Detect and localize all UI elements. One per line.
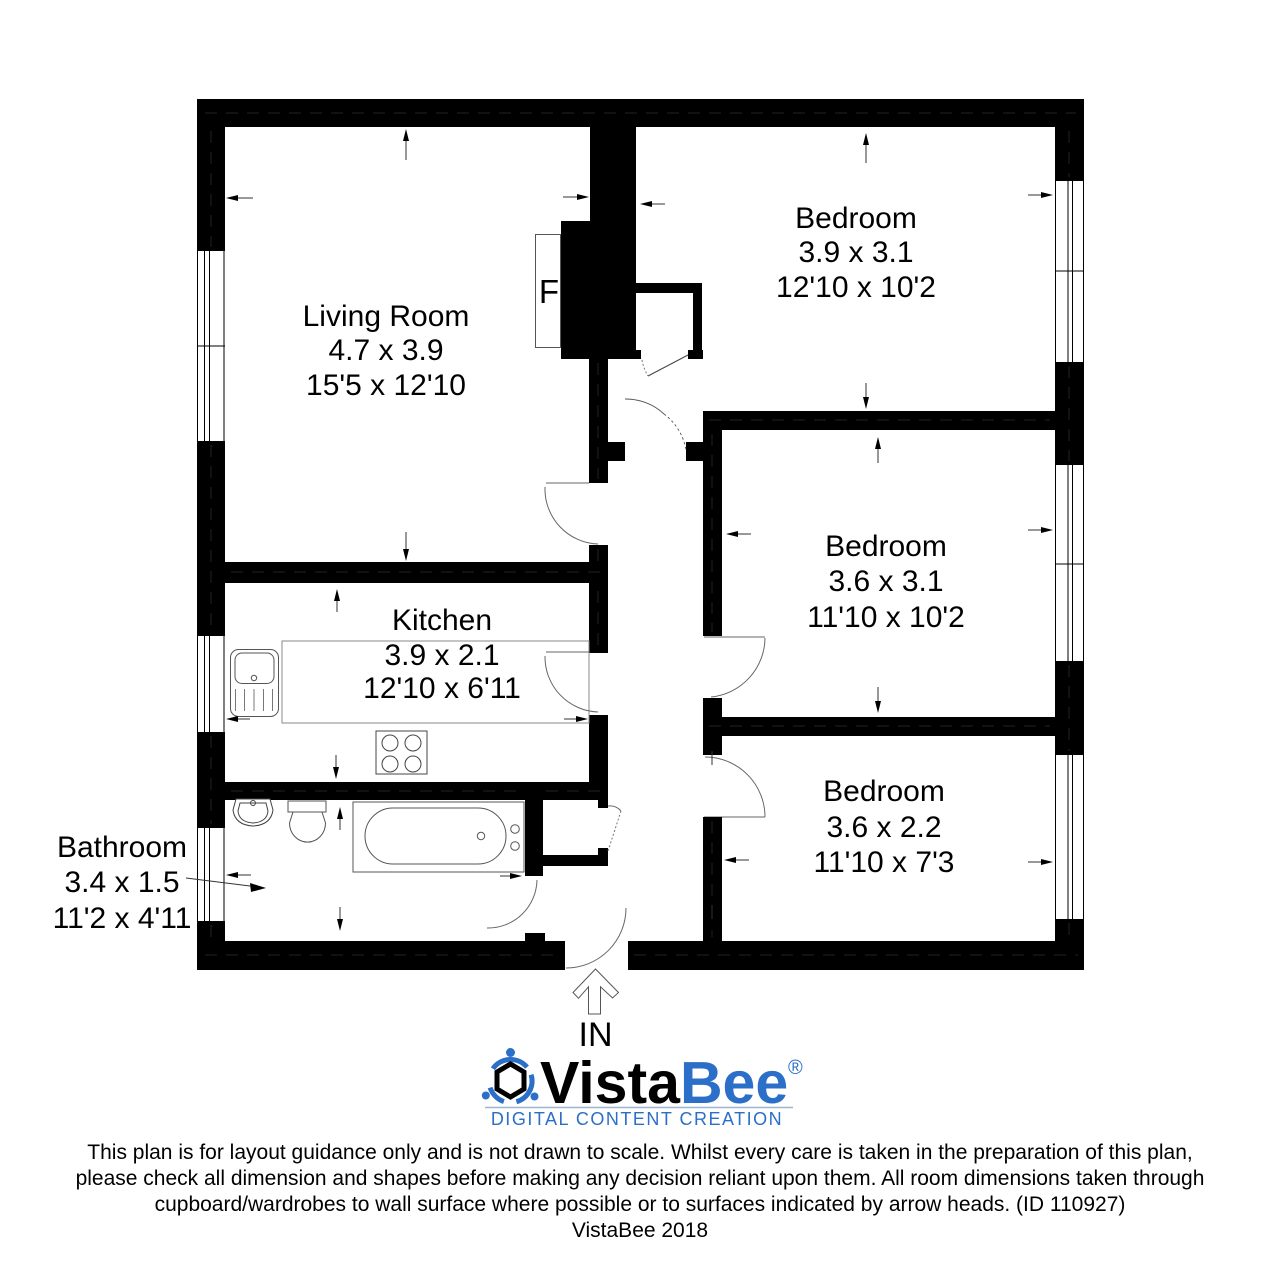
svg-text:VistaBee: VistaBee: [540, 1050, 788, 1116]
svg-text:3.6 x 2.2: 3.6 x 2.2: [826, 811, 941, 844]
svg-text:11'10 x 7'3: 11'10 x 7'3: [813, 846, 954, 879]
svg-text:11'2 x 4'11: 11'2 x 4'11: [53, 902, 192, 935]
svg-text:DIGITAL CONTENT CREATION: DIGITAL CONTENT CREATION: [491, 1109, 783, 1129]
svg-text:Bedroom: Bedroom: [823, 775, 945, 808]
svg-text:cupboard/wardrobes to wall sur: cupboard/wardrobes to wall surface where…: [155, 1193, 1126, 1216]
svg-text:Living Room: Living Room: [303, 300, 470, 333]
svg-text:Bedroom: Bedroom: [825, 530, 947, 563]
svg-text:please check all dimension and: please check all dimension and shapes be…: [76, 1167, 1205, 1190]
svg-text:15'5 x 12'10: 15'5 x 12'10: [306, 369, 466, 402]
svg-text:3.4 x 1.5: 3.4 x 1.5: [64, 866, 179, 899]
svg-text:12'10 x 6'11: 12'10 x 6'11: [363, 672, 521, 705]
svg-text:F: F: [539, 273, 559, 310]
svg-text:Bathroom: Bathroom: [57, 831, 187, 864]
svg-text:4.7 x 3.9: 4.7 x 3.9: [328, 334, 443, 367]
svg-text:IN: IN: [579, 1016, 613, 1054]
svg-text:3.9 x 2.1: 3.9 x 2.1: [384, 639, 499, 672]
svg-text:Kitchen: Kitchen: [392, 604, 492, 637]
svg-text:3.9 x 3.1: 3.9 x 3.1: [798, 236, 913, 269]
svg-text:VistaBee 2018: VistaBee 2018: [572, 1219, 708, 1242]
svg-text:This plan is for layout guidan: This plan is for layout guidance only an…: [87, 1141, 1192, 1164]
svg-text:12'10 x 10'2: 12'10 x 10'2: [776, 271, 936, 304]
svg-text:11'10 x 10'2: 11'10 x 10'2: [807, 601, 965, 634]
svg-text:®: ®: [788, 1057, 803, 1079]
svg-text:3.6 x 3.1: 3.6 x 3.1: [828, 565, 943, 598]
svg-text:Bedroom: Bedroom: [795, 202, 917, 235]
